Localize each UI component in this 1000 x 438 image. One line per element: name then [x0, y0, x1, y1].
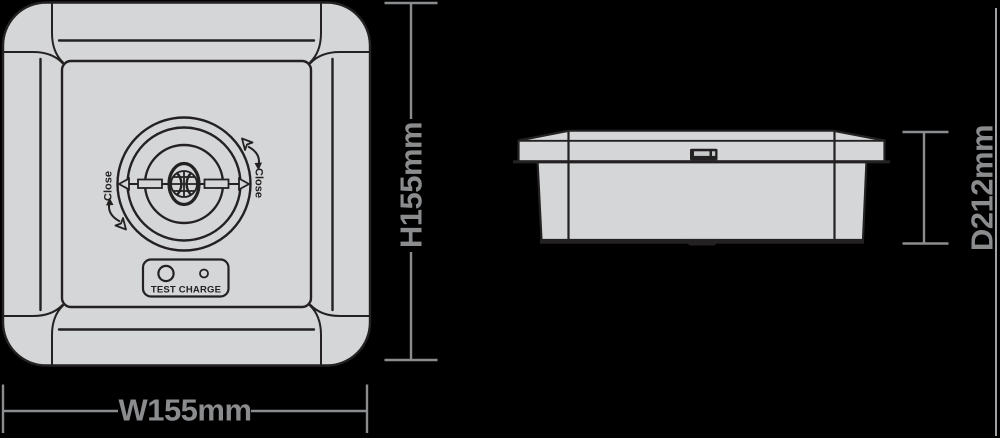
close-label-left: Close	[104, 171, 115, 201]
side-view-drawing	[513, 131, 890, 246]
axis-tab-left	[138, 180, 162, 189]
depth-dimension-line	[903, 132, 949, 244]
gimbal-lamp-icon	[169, 164, 199, 205]
side-bottom-tab	[684, 239, 720, 246]
mounting-slot-icon	[690, 149, 718, 161]
close-label-right: Close	[253, 168, 264, 198]
side-body	[538, 161, 867, 240]
width-dimension-label: W155mm	[118, 395, 251, 426]
diagram-canvas: H155mm W155mm D212mm Close Close TEST CH…	[0, 0, 1000, 438]
height-dimension-label: H155mm	[396, 122, 427, 248]
axis-tab-right	[205, 180, 229, 189]
product-dimension-drawing	[0, 0, 1000, 438]
test-charge-label: TEST CHARGE	[151, 285, 221, 295]
depth-dimension-label: D212mm	[967, 125, 998, 251]
